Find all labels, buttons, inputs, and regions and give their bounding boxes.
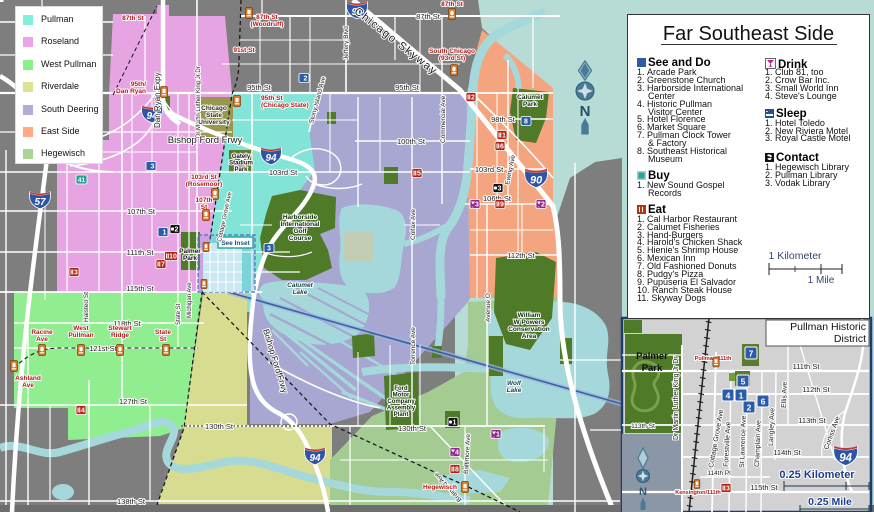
- svg-text:95th St: 95th St: [261, 95, 284, 102]
- svg-text:State St: State St: [176, 303, 182, 325]
- svg-text:1: 1: [739, 391, 744, 401]
- svg-text:St: St: [160, 336, 167, 343]
- svg-text:6: 6: [500, 144, 504, 151]
- svg-text:3: 3: [151, 164, 155, 171]
- svg-text:District: District: [834, 333, 866, 345]
- svg-text:103rd St: 103rd St: [191, 174, 217, 181]
- svg-text:3: 3: [498, 186, 502, 193]
- svg-text:Park: Park: [234, 167, 248, 173]
- svg-text:(Chicago State): (Chicago State): [261, 102, 309, 109]
- svg-text:Park: Park: [642, 363, 663, 374]
- svg-text:Golf: Golf: [294, 228, 308, 235]
- svg-text:Bishop Ford Frwy: Bishop Ford Frwy: [168, 135, 243, 146]
- svg-text:4: 4: [455, 450, 459, 457]
- svg-text:113th St: 113th St: [798, 416, 826, 425]
- svg-text:3: 3: [267, 246, 271, 253]
- svg-text:87th St: 87th St: [416, 12, 441, 21]
- svg-text:Motor: Motor: [393, 393, 410, 399]
- svg-text:Company: Company: [387, 399, 415, 405]
- svg-text:(Rosemoor): (Rosemoor): [186, 181, 222, 188]
- svg-text:Dr Martin Luther King Jr Dr: Dr Martin Luther King Jr Dr: [196, 66, 202, 138]
- svg-text:Kensington/111th: Kensington/111th: [675, 490, 721, 496]
- svg-text:121st St: 121st St: [89, 344, 117, 353]
- svg-text:Gately: Gately: [232, 154, 251, 160]
- svg-text:Pullman Historic: Pullman Historic: [790, 321, 866, 333]
- svg-text:N: N: [580, 103, 591, 120]
- svg-text:Ford: Ford: [394, 386, 408, 392]
- svg-text:1 Mile: 1 Mile: [808, 275, 835, 286]
- svg-text:Stadium: Stadium: [229, 161, 253, 167]
- svg-text:Park: Park: [183, 255, 197, 262]
- svg-text:1: 1: [502, 133, 506, 140]
- svg-text:107th St: 107th St: [127, 207, 156, 216]
- svg-text:Dan Ryan Expy: Dan Ryan Expy: [153, 72, 162, 128]
- svg-text:West: West: [73, 325, 89, 332]
- svg-text:Palmer: Palmer: [636, 351, 668, 362]
- svg-text:114th St: 114th St: [773, 448, 801, 457]
- svg-text:7: 7: [749, 349, 754, 359]
- svg-text:95th/: 95th/: [131, 81, 146, 88]
- svg-text:111th St: 111th St: [127, 248, 155, 257]
- svg-text:113th St: 113th St: [631, 423, 655, 430]
- svg-text:94: 94: [265, 153, 277, 164]
- svg-text:2: 2: [471, 95, 475, 102]
- svg-text:University: University: [198, 119, 230, 126]
- svg-text:2: 2: [747, 403, 752, 413]
- svg-text:Torrence Ave: Torrence Ave: [410, 327, 417, 365]
- svg-text:(93rd St): (93rd St): [439, 55, 465, 62]
- svg-text:8: 8: [455, 467, 459, 474]
- svg-text:8: 8: [524, 119, 528, 126]
- svg-text:2: 2: [541, 202, 545, 209]
- svg-text:91st St: 91st St: [233, 47, 255, 54]
- svg-text:State: State: [206, 112, 222, 119]
- svg-text:87th St: 87th St: [256, 14, 279, 21]
- svg-text:Avenue O: Avenue O: [485, 293, 492, 322]
- svg-text:Lake: Lake: [507, 387, 522, 394]
- svg-text:(Woodruff): (Woodruff): [250, 21, 283, 28]
- svg-text:1: 1: [163, 230, 167, 237]
- svg-text:130th St: 130th St: [398, 424, 427, 433]
- svg-text:4: 4: [81, 408, 85, 415]
- svg-text:William: William: [518, 312, 541, 319]
- svg-text:130th St: 130th St: [205, 422, 234, 431]
- svg-text:95th St: 95th St: [247, 83, 272, 92]
- svg-text:95th St: 95th St: [395, 83, 420, 92]
- svg-text:Michigan Ave: Michigan Ave: [187, 282, 193, 318]
- svg-text:111th St: 111th St: [793, 362, 821, 371]
- svg-text:2: 2: [175, 227, 179, 234]
- svg-text:1: 1: [496, 432, 500, 439]
- svg-text:Commercial Ave: Commercial Ave: [440, 95, 447, 143]
- svg-text:115th St: 115th St: [750, 483, 778, 492]
- svg-text:3: 3: [74, 270, 78, 277]
- svg-text:Dan Ryan: Dan Ryan: [116, 88, 146, 95]
- svg-text:Dr Martin Luther King Jr Dr: Dr Martin Luther King Jr Dr: [673, 356, 680, 440]
- svg-text:N: N: [639, 486, 647, 498]
- svg-text:Hegewisch: Hegewisch: [423, 484, 457, 491]
- svg-text:Langley Ave: Langley Ave: [768, 408, 776, 446]
- svg-text:103rd St: 103rd St: [475, 165, 504, 174]
- svg-text:Assembly: Assembly: [387, 406, 416, 412]
- svg-text:98th St: 98th St: [491, 115, 516, 124]
- svg-text:Calumet: Calumet: [287, 282, 313, 289]
- svg-text:Palmer: Palmer: [179, 248, 201, 255]
- svg-text:Plant: Plant: [394, 412, 409, 418]
- svg-text:112th St: 112th St: [507, 251, 535, 260]
- svg-text:0.25 Kilometer: 0.25 Kilometer: [779, 469, 855, 481]
- svg-text:Ellis Ave: Ellis Ave: [781, 381, 789, 408]
- svg-text:Ridge: Ridge: [111, 332, 129, 339]
- svg-text:4: 4: [726, 391, 731, 401]
- svg-text:Area: Area: [522, 333, 537, 340]
- svg-text:1 Kilometer: 1 Kilometer: [768, 250, 822, 262]
- svg-text:Course: Course: [289, 235, 312, 242]
- svg-text:7: 7: [161, 262, 165, 269]
- svg-text:90: 90: [530, 175, 543, 187]
- svg-text:115th St: 115th St: [126, 284, 154, 293]
- svg-text:87th St: 87th St: [441, 1, 464, 8]
- svg-text:1: 1: [453, 420, 457, 427]
- svg-text:Colfax Ave: Colfax Ave: [410, 209, 417, 240]
- svg-text:107th: 107th: [196, 197, 213, 204]
- svg-text:5: 5: [741, 377, 746, 387]
- svg-text:0.25 Mile: 0.25 Mile: [808, 496, 852, 508]
- svg-text:Park: Park: [523, 101, 537, 108]
- svg-text:87th St: 87th St: [122, 15, 145, 22]
- svg-text:57: 57: [34, 197, 46, 208]
- svg-text:94: 94: [309, 453, 321, 464]
- svg-text:100th St: 100th St: [397, 137, 426, 146]
- svg-text:3: 3: [475, 202, 479, 209]
- svg-text:138th St: 138th St: [117, 497, 146, 506]
- svg-text:Calumet: Calumet: [517, 94, 543, 101]
- svg-text:Conservation: Conservation: [508, 326, 550, 333]
- svg-text:Ave: Ave: [22, 382, 34, 389]
- svg-text:Jeffery Blvd: Jeffery Blvd: [343, 26, 350, 60]
- svg-text:Wolf: Wolf: [507, 380, 522, 387]
- svg-text:Ave: Ave: [36, 336, 48, 343]
- svg-text:3: 3: [726, 486, 730, 493]
- svg-text:103rd St: 103rd St: [269, 168, 298, 177]
- svg-text:127th St: 127th St: [119, 397, 148, 406]
- svg-text:See Inset: See Inset: [221, 240, 250, 247]
- svg-text:W Powers: W Powers: [513, 319, 544, 326]
- svg-text:10: 10: [169, 254, 177, 261]
- svg-text:9: 9: [500, 202, 504, 209]
- svg-text:Ashland: Ashland: [15, 375, 41, 382]
- svg-text:Lake: Lake: [293, 289, 308, 296]
- svg-text:Chicago: Chicago: [201, 105, 227, 112]
- svg-text:Pullman: Pullman: [68, 332, 93, 339]
- svg-text:94: 94: [839, 452, 852, 464]
- svg-text:Racine: Racine: [31, 329, 53, 336]
- svg-text:5: 5: [417, 171, 421, 178]
- svg-text:South Chicago: South Chicago: [429, 48, 475, 55]
- svg-text:6: 6: [761, 397, 766, 407]
- svg-text:41: 41: [78, 177, 86, 184]
- svg-text:2: 2: [304, 76, 308, 83]
- svg-text:112th St: 112th St: [802, 385, 830, 394]
- svg-text:Halsted St: Halsted St: [83, 292, 90, 322]
- svg-text:Harborside: Harborside: [283, 214, 318, 221]
- svg-text:Stewart: Stewart: [108, 325, 132, 332]
- svg-text:International: International: [280, 221, 319, 228]
- svg-text:State: State: [155, 329, 171, 336]
- svg-text:114th Pl: 114th Pl: [707, 470, 731, 477]
